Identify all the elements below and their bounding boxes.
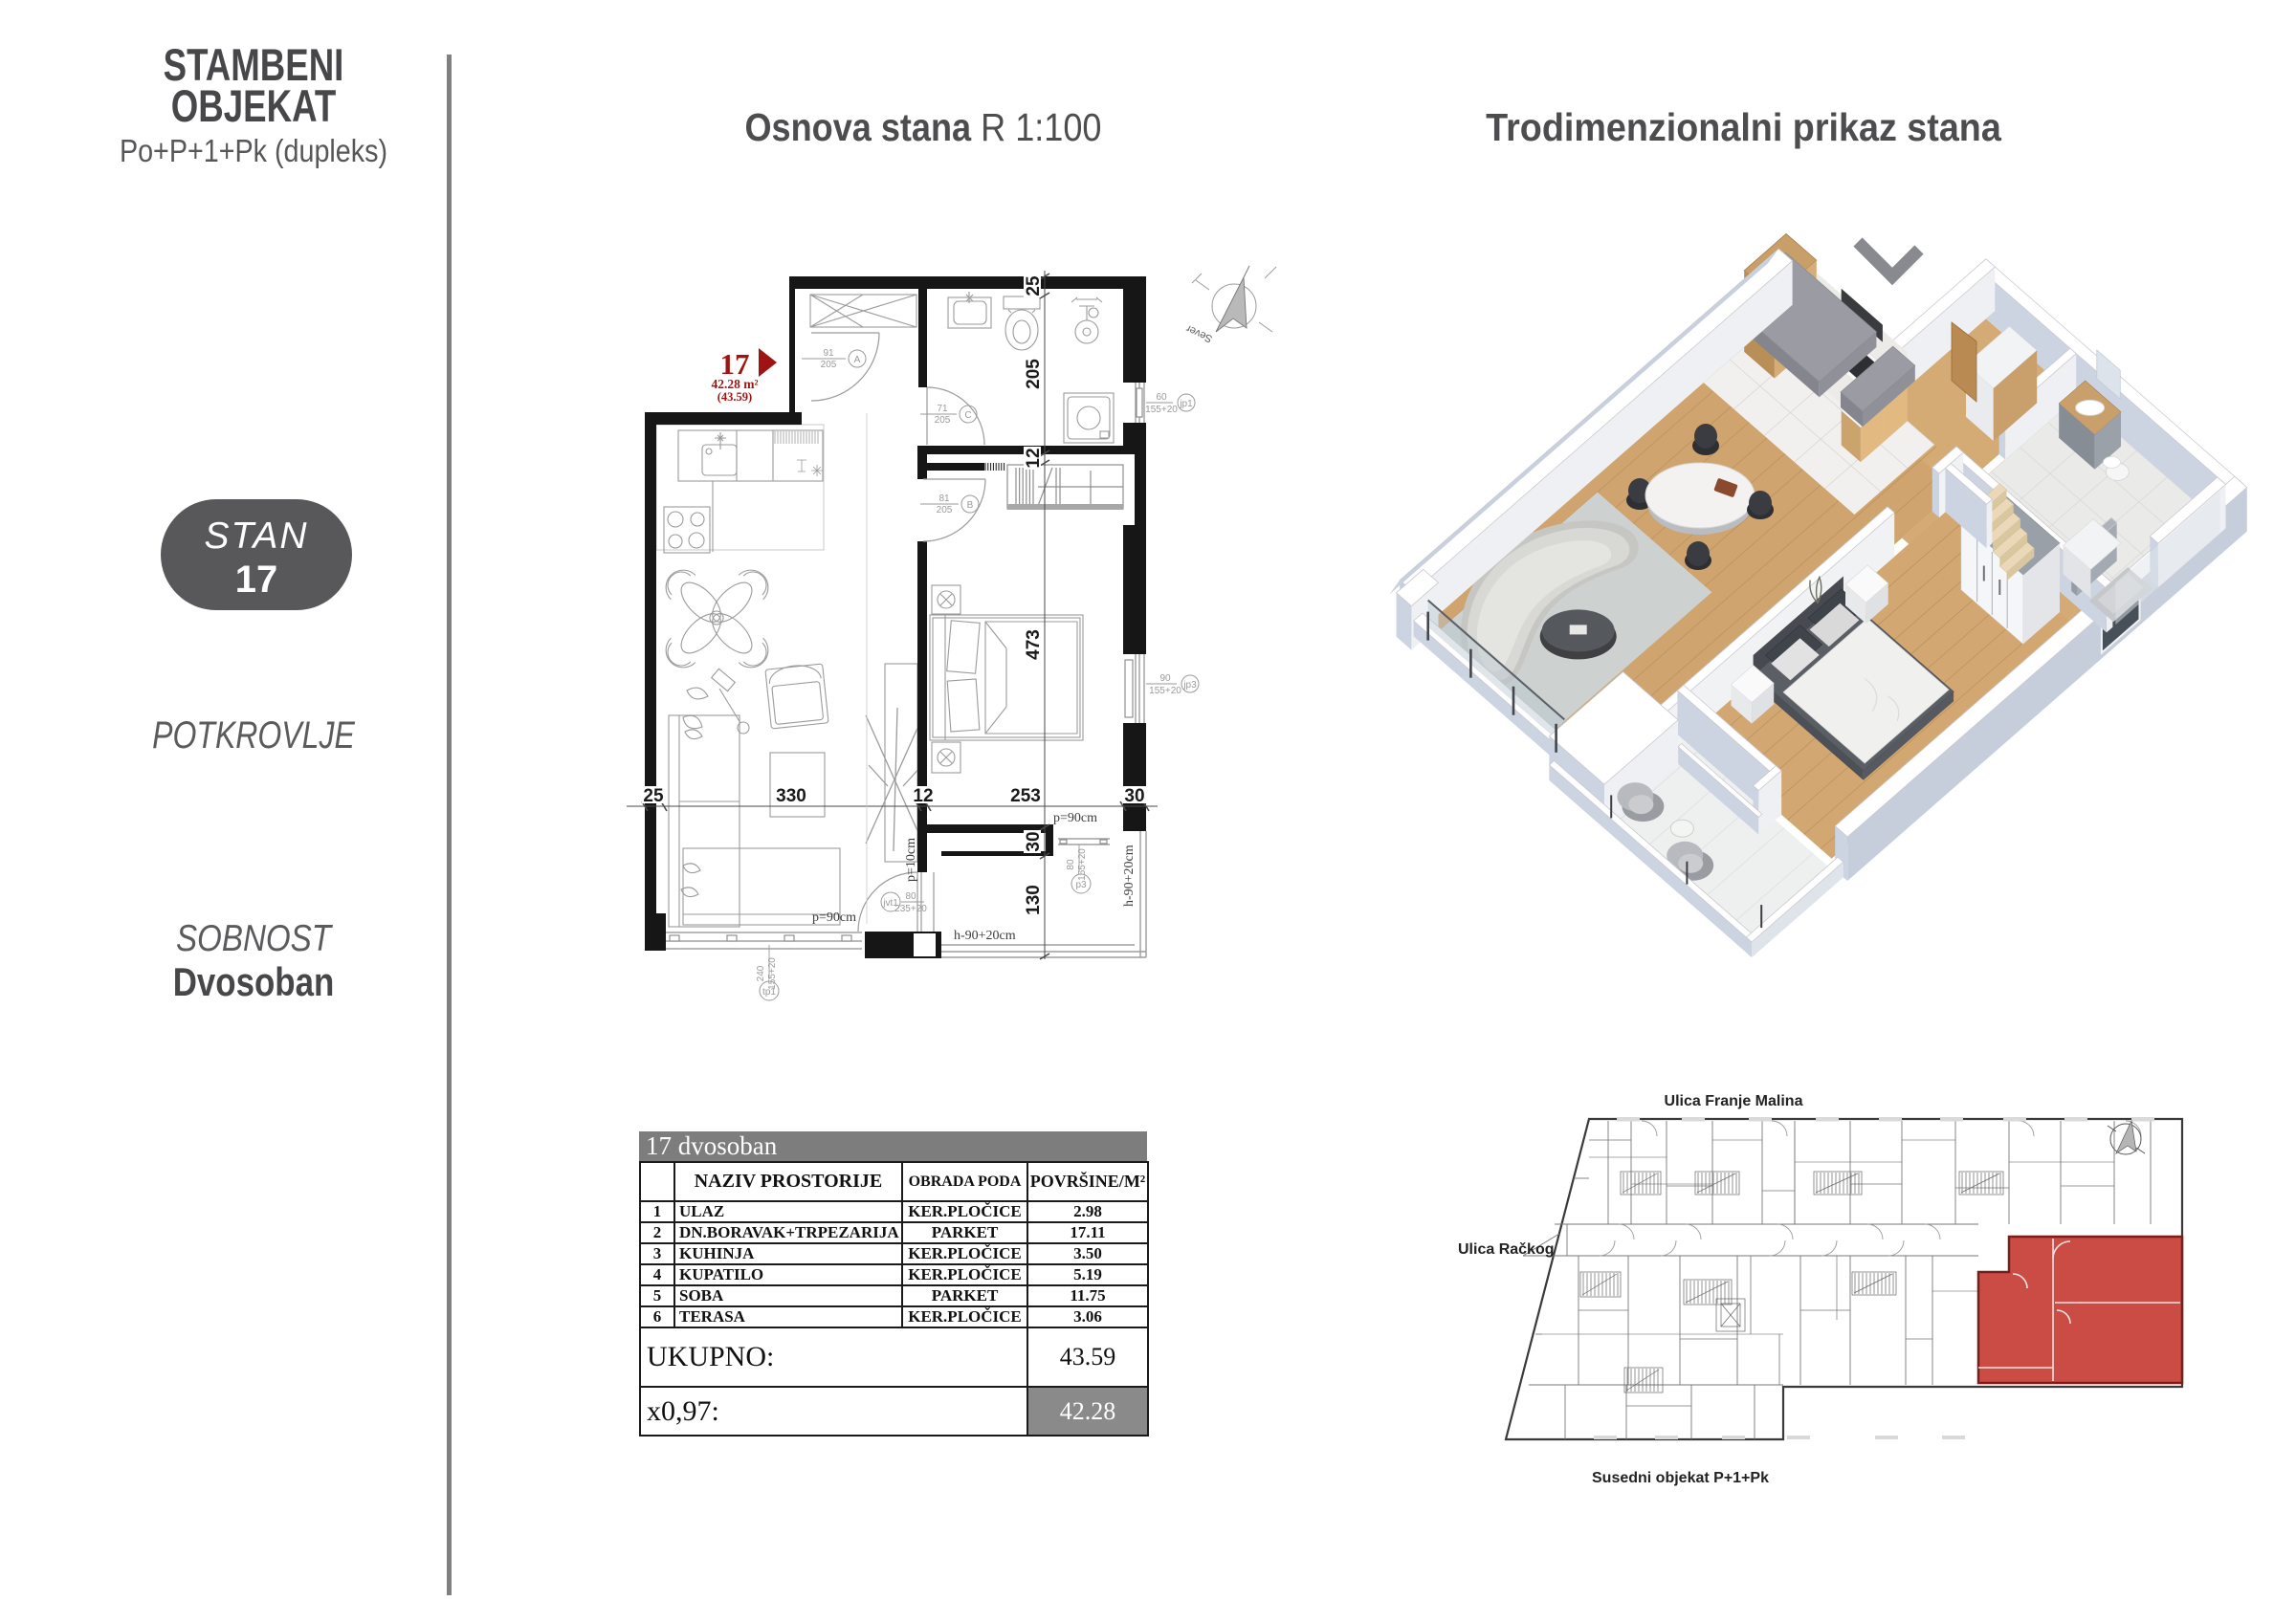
svg-text:473: 473: [1024, 629, 1044, 660]
svg-text:A: A: [854, 355, 861, 365]
svg-text:80: 80: [905, 891, 916, 902]
svg-text:h-90+20cm: h-90+20cm: [1122, 844, 1137, 907]
svg-text:253: 253: [1010, 786, 1041, 806]
svg-text:Ulica Franje Malina: Ulica Franje Malina: [1665, 1093, 1803, 1109]
svg-text:91: 91: [823, 348, 834, 359]
svg-text:90: 90: [1159, 673, 1171, 684]
svg-text:p=90cm: p=90cm: [812, 910, 856, 925]
svg-text:30: 30: [1124, 786, 1144, 806]
svg-text:Ulica Račkog: Ulica Račkog: [1458, 1241, 1554, 1258]
svg-text:17: 17: [720, 347, 750, 381]
svg-text:155+20: 155+20: [1145, 405, 1178, 415]
svg-text:(43.59): (43.59): [717, 390, 752, 404]
svg-text:80: 80: [1066, 859, 1076, 870]
svg-text:205: 205: [1024, 359, 1044, 389]
svg-text:205: 205: [821, 360, 837, 370]
svg-text:jp1: jp1: [1179, 399, 1193, 409]
svg-text:60: 60: [1156, 392, 1167, 403]
svg-text:p=90cm: p=90cm: [1053, 811, 1097, 825]
svg-text:12: 12: [913, 786, 933, 806]
svg-text:p=10cm: p=10cm: [904, 838, 918, 882]
svg-text:330: 330: [776, 786, 806, 806]
svg-text:jvt1: jvt1: [882, 898, 898, 909]
svg-text:h-90+20cm: h-90+20cm: [954, 929, 1016, 943]
svg-text:130: 130: [1024, 885, 1044, 915]
svg-text:240: 240: [756, 965, 766, 981]
svg-text:25: 25: [1024, 275, 1044, 296]
svg-text:205: 205: [935, 415, 951, 426]
svg-text:p3: p3: [1075, 880, 1087, 890]
svg-text:tp1: tp1: [762, 987, 776, 998]
svg-text:Sever: Sever: [1184, 322, 1214, 344]
svg-text:12: 12: [1024, 448, 1044, 468]
svg-text:25: 25: [643, 786, 664, 806]
svg-text:Susedni objekat P+1+Pk: Susedni objekat P+1+Pk: [1592, 1470, 1769, 1486]
svg-text:155+20: 155+20: [1149, 686, 1181, 696]
svg-text:B: B: [967, 500, 974, 511]
svg-text:C: C: [964, 410, 971, 421]
svg-text:42.28 m²: 42.28 m²: [711, 377, 758, 391]
svg-text:81: 81: [938, 493, 950, 504]
svg-text:205: 205: [937, 505, 953, 515]
svg-text:71: 71: [937, 404, 948, 414]
svg-text:30: 30: [1024, 831, 1044, 851]
svg-text:jp3: jp3: [1182, 680, 1197, 691]
